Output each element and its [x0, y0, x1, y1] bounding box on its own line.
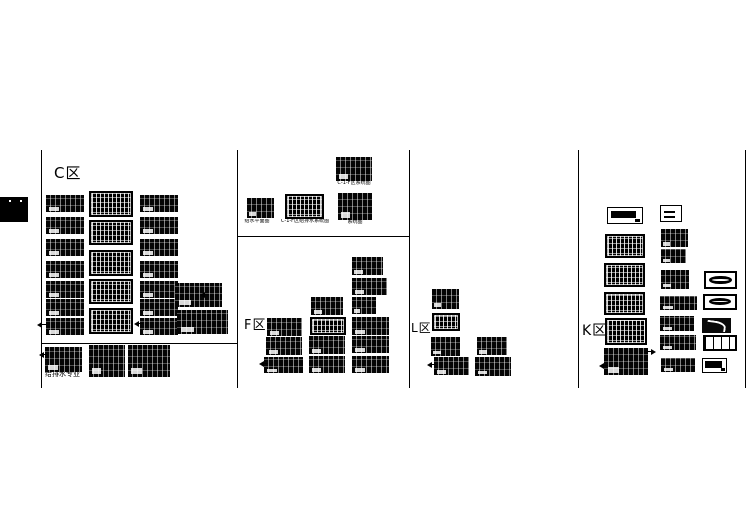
- drawing-speck: [20, 200, 22, 202]
- leader-arrow-icon: [424, 362, 436, 368]
- leader-arrow-icon: [647, 349, 659, 355]
- drawing-thumbnail[interactable]: [352, 317, 389, 335]
- drawing-thumbnail[interactable]: [46, 318, 84, 335]
- drawing-thumbnail[interactable]: [477, 337, 507, 355]
- drawing-thumbnail[interactable]: [140, 299, 178, 316]
- drawing-thumbnail[interactable]: [703, 294, 737, 310]
- section-label-l: L区: [411, 322, 432, 334]
- drawing-thumbnail[interactable]: [702, 318, 731, 333]
- leader-arrow-icon: [36, 352, 48, 358]
- frame-divider-vertical: [237, 150, 238, 388]
- drawing-thumbnail[interactable]: [46, 217, 84, 234]
- drawing-thumbnail[interactable]: [309, 356, 345, 373]
- drawing-thumbnail[interactable]: [89, 308, 133, 334]
- drawing-thumbnail[interactable]: [46, 261, 84, 278]
- offscreen-drawing-block[interactable]: [0, 197, 28, 222]
- drawing-thumbnail[interactable]: [285, 194, 324, 219]
- drawing-thumbnail[interactable]: [475, 357, 511, 376]
- drawing-thumbnail[interactable]: [352, 336, 389, 353]
- drawing-thumbnail[interactable]: [46, 239, 84, 256]
- drawing-thumbnail[interactable]: [703, 335, 737, 351]
- drawing-thumbnail[interactable]: [352, 297, 376, 314]
- drawing-thumbnail[interactable]: [46, 281, 84, 298]
- drawing-thumbnail[interactable]: [89, 279, 133, 304]
- leader-arrow-icon: [131, 321, 143, 327]
- sheet-caption: C-1-F区给排水系统图: [276, 219, 334, 224]
- drawing-thumbnail[interactable]: [434, 357, 469, 375]
- drawing-thumbnail[interactable]: [604, 292, 645, 315]
- drawing-thumbnail[interactable]: [140, 217, 178, 234]
- drawing-thumbnail[interactable]: [352, 356, 389, 373]
- drawing-thumbnail[interactable]: [660, 296, 697, 310]
- drawing-thumbnail[interactable]: [266, 337, 302, 355]
- leader-arrow-icon: [596, 363, 608, 369]
- drawing-thumbnail[interactable]: [338, 193, 372, 220]
- drawing-thumbnail[interactable]: [660, 205, 682, 222]
- drawing-thumbnail[interactable]: [46, 299, 84, 316]
- drawing-thumbnail[interactable]: [702, 358, 727, 373]
- sheet-caption: 系统图: [334, 220, 376, 225]
- drawing-thumbnail[interactable]: [310, 317, 346, 335]
- drawing-thumbnail[interactable]: [177, 310, 228, 334]
- section-label-c: C区: [54, 166, 81, 181]
- frame-divider-vertical: [578, 150, 579, 388]
- drawing-thumbnail[interactable]: [89, 250, 133, 276]
- drawing-thumbnail[interactable]: [660, 316, 694, 331]
- drawing-thumbnail[interactable]: [140, 239, 178, 256]
- drawing-thumbnail[interactable]: [660, 335, 696, 350]
- leader-arrow-icon: [197, 292, 209, 298]
- section-sublabel-plumbing: 给排水专业: [45, 371, 80, 378]
- drawing-thumbnail[interactable]: [352, 257, 383, 275]
- drawing-thumbnail[interactable]: [45, 347, 82, 372]
- cad-canvas: C区 F区 L区 K区 给排水专业 C-1-F区系统图 给水平面图 C-1-F区…: [0, 0, 749, 530]
- section-label-k: K区: [582, 324, 607, 338]
- drawing-thumbnail[interactable]: [140, 261, 178, 278]
- drawing-thumbnail[interactable]: [336, 157, 372, 181]
- drawing-thumbnail[interactable]: [128, 345, 170, 377]
- drawing-thumbnail[interactable]: [89, 220, 133, 245]
- drawing-thumbnail[interactable]: [140, 195, 178, 212]
- drawing-thumbnail[interactable]: [604, 263, 645, 287]
- drawing-thumbnail[interactable]: [604, 348, 648, 375]
- drawing-thumbnail[interactable]: [661, 229, 688, 247]
- drawing-thumbnail[interactable]: [247, 198, 274, 218]
- drawing-thumbnail[interactable]: [140, 318, 178, 335]
- drawing-thumbnail[interactable]: [432, 289, 459, 309]
- frame-divider-horizontal: [237, 236, 409, 237]
- section-label-f: F区: [244, 319, 266, 332]
- drawing-thumbnail[interactable]: [432, 313, 460, 331]
- drawing-thumbnail[interactable]: [89, 191, 133, 217]
- drawing-thumbnail[interactable]: [311, 297, 343, 315]
- drawing-thumbnail[interactable]: [661, 270, 689, 289]
- drawing-thumbnail[interactable]: [607, 207, 643, 224]
- drawing-thumbnail[interactable]: [661, 358, 695, 372]
- drawing-thumbnail[interactable]: [309, 336, 345, 354]
- drawing-thumbnail[interactable]: [89, 345, 125, 377]
- drawing-thumbnail[interactable]: [661, 249, 686, 263]
- sheet-caption: C-1-F区系统图: [328, 181, 380, 186]
- drawing-thumbnail[interactable]: [431, 337, 460, 356]
- drawing-thumbnail[interactable]: [264, 357, 303, 373]
- drawing-thumbnail[interactable]: [352, 278, 387, 295]
- drawing-thumbnail[interactable]: [704, 271, 737, 289]
- drawing-thumbnail[interactable]: [605, 318, 647, 345]
- drawing-thumbnail[interactable]: [46, 195, 84, 212]
- drawing-thumbnail[interactable]: [267, 318, 302, 336]
- drawing-thumbnail[interactable]: [140, 281, 178, 298]
- leader-arrow-icon: [256, 361, 268, 367]
- frame-divider-vertical: [745, 150, 746, 388]
- leader-arrow-icon: [34, 322, 46, 328]
- frame-divider-vertical: [409, 150, 410, 388]
- frame-divider-horizontal: [41, 343, 237, 344]
- drawing-speck: [9, 200, 11, 202]
- sheet-caption: 给水平面图: [238, 219, 276, 224]
- drawing-thumbnail[interactable]: [605, 234, 645, 258]
